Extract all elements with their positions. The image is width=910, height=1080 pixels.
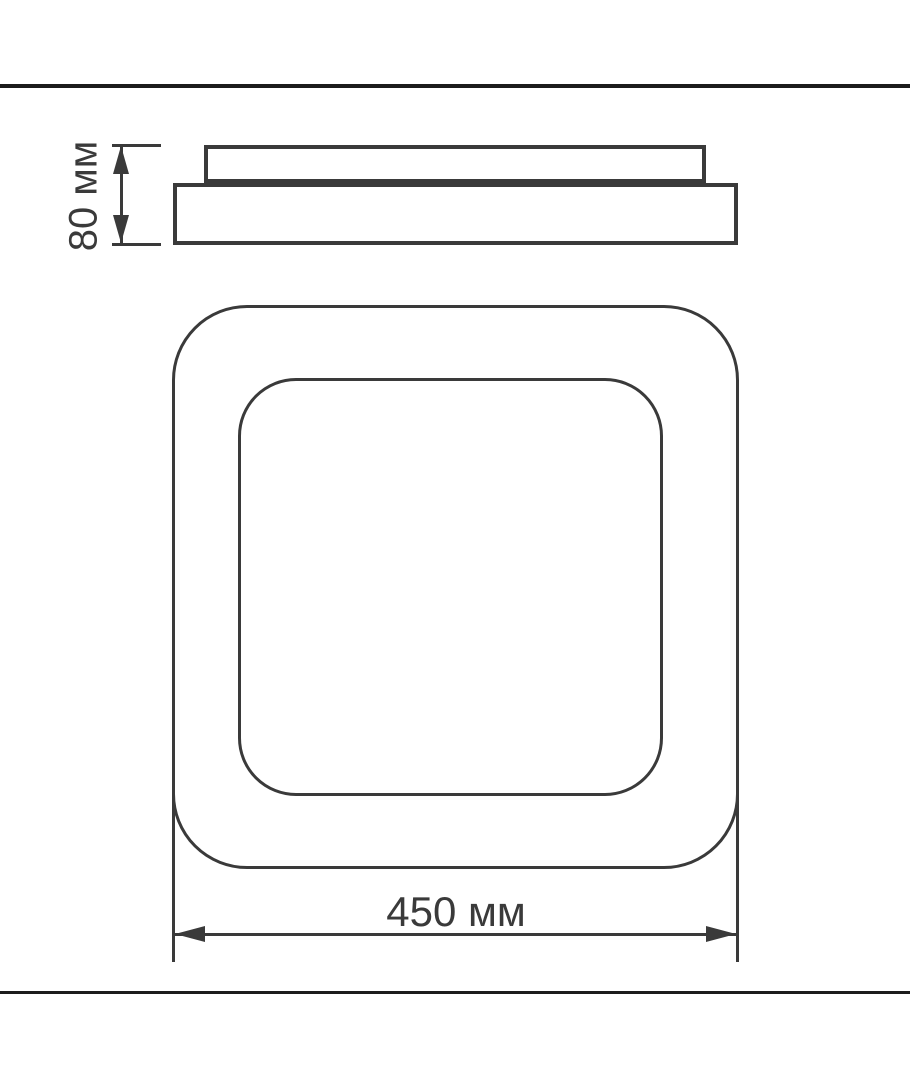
arrow-up-icon: [113, 146, 129, 174]
width-dimension-label: 450 мм: [386, 888, 526, 936]
technical-drawing-canvas: 80 мм 450 мм: [0, 0, 910, 1080]
side-view-upper-body: [204, 145, 706, 183]
arrow-left-icon: [175, 926, 205, 942]
height-dimension-bottom-tick: [112, 243, 161, 246]
arrow-down-icon: [113, 215, 129, 243]
bottom-border-rule: [0, 991, 910, 994]
width-dimension-right-extension-line: [736, 794, 739, 962]
top-border-rule: [0, 84, 910, 88]
fixture-inner-panel-outline: [238, 378, 663, 796]
side-view-lower-body: [173, 183, 738, 245]
arrow-right-icon: [706, 926, 736, 942]
height-dimension-label: 80 мм: [62, 141, 107, 252]
